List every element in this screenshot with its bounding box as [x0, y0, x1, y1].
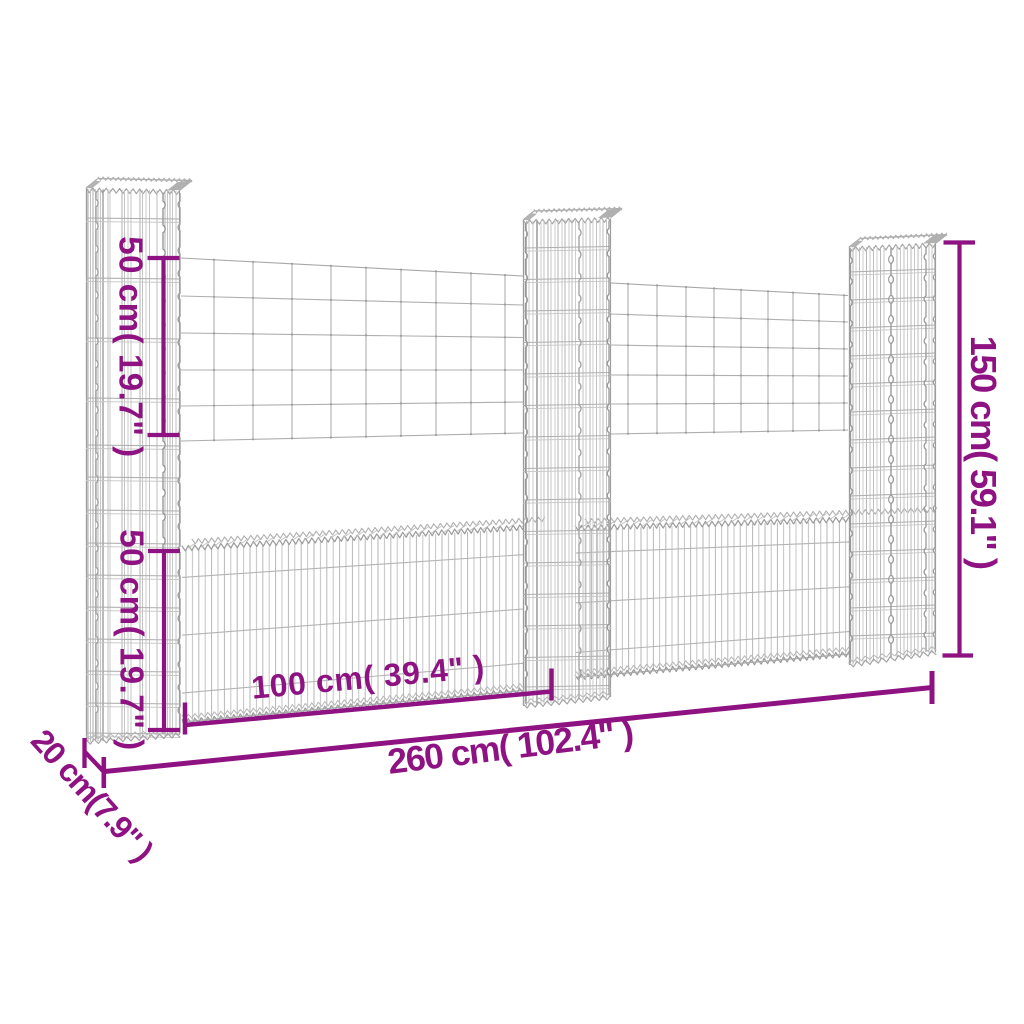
- svg-text:50 cm( 19.7" ): 50 cm( 19.7" ): [113, 236, 150, 457]
- svg-text:50 cm( 19.7" ): 50 cm( 19.7" ): [114, 529, 151, 750]
- svg-text:150 cm( 59.1" ): 150 cm( 59.1" ): [963, 336, 1004, 569]
